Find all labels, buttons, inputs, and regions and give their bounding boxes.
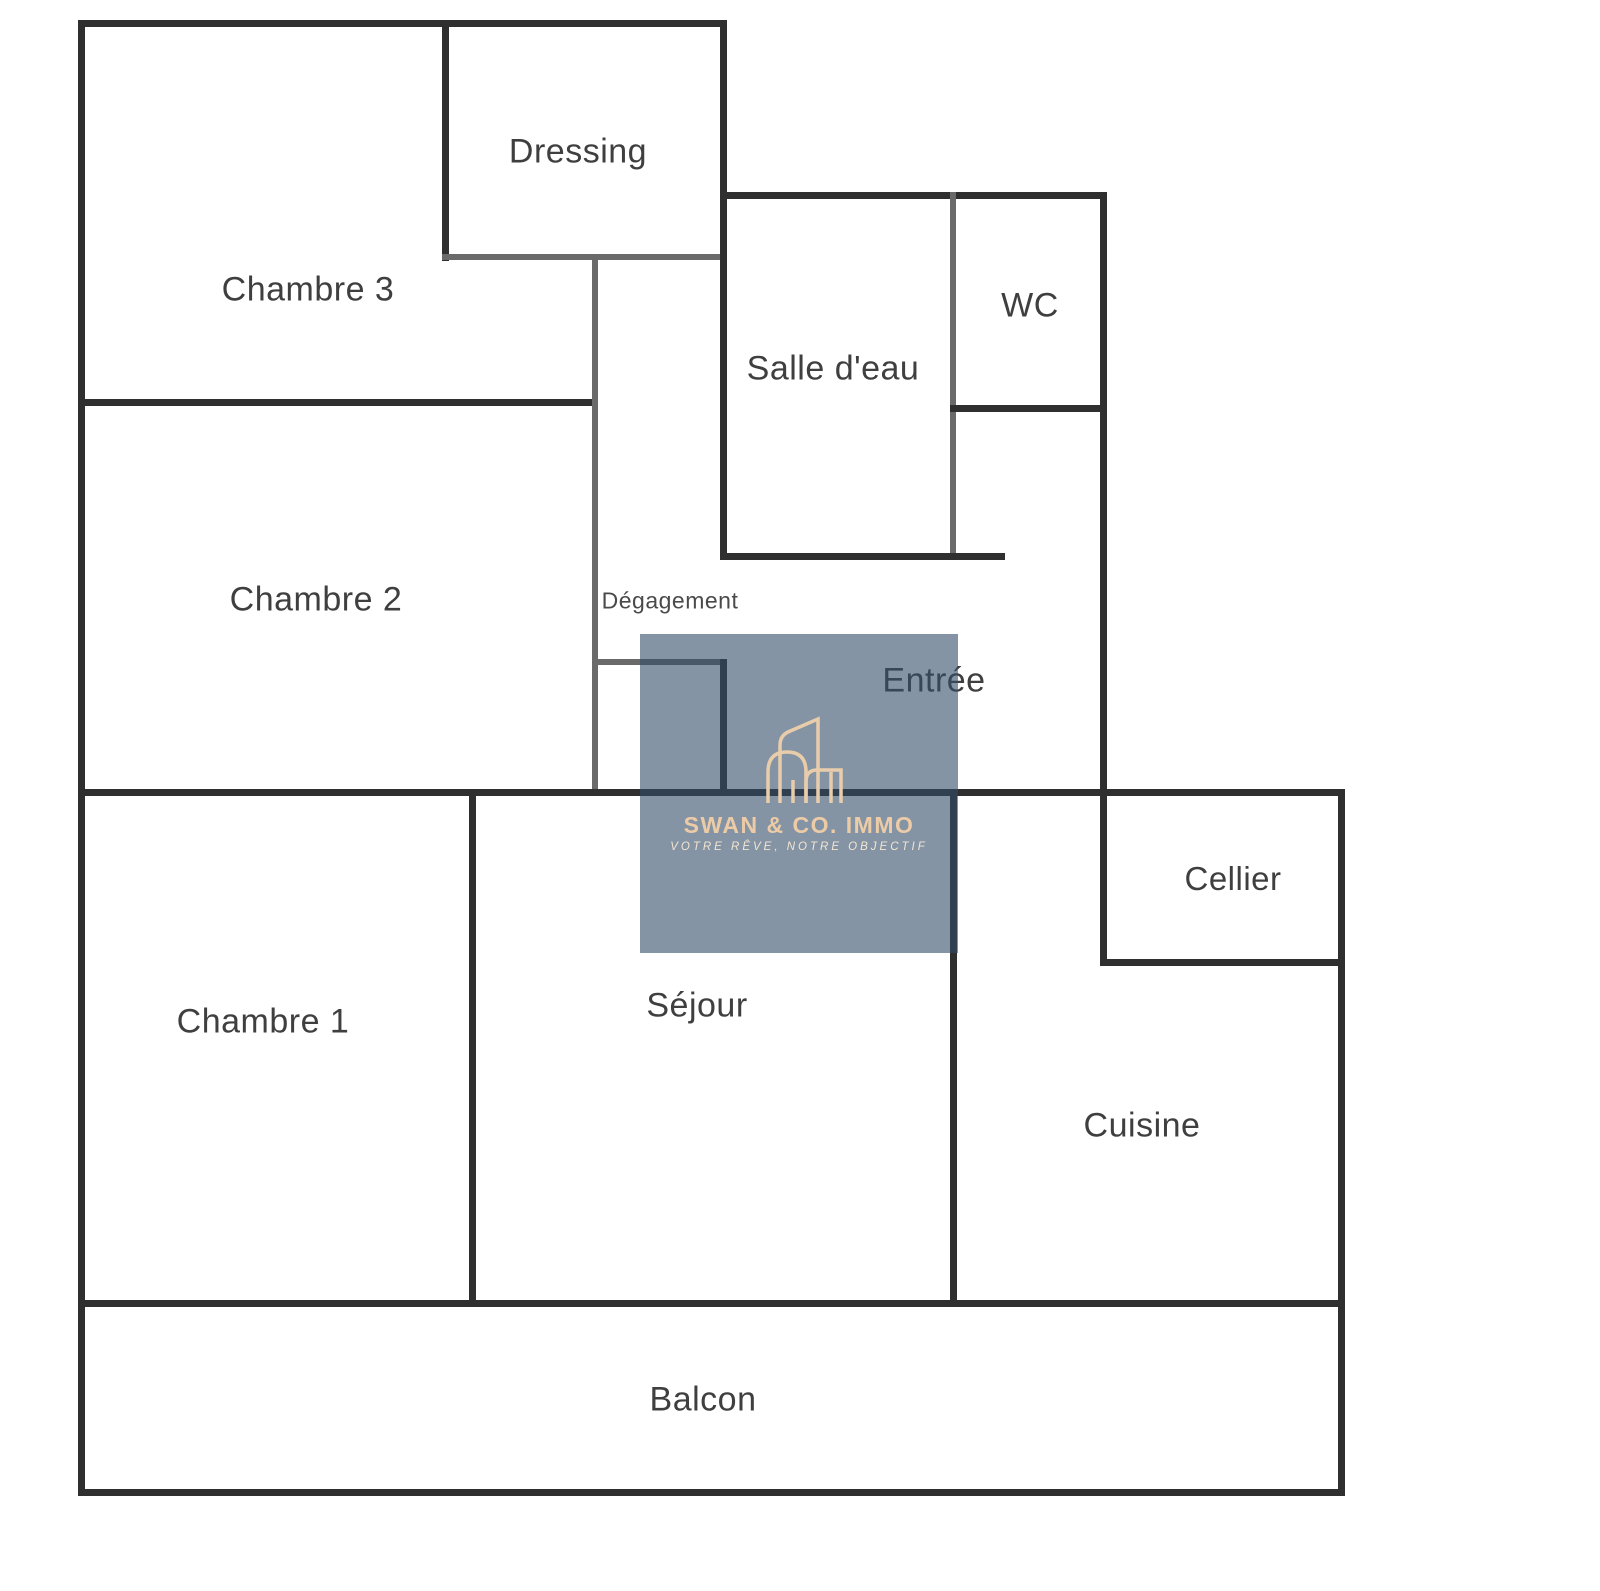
wall-chambre3-bottom: [78, 399, 598, 406]
wall-top-outer: [78, 20, 726, 27]
watermark-tagline: VOTRE RÊVE, NOTRE OBJECTIF: [640, 841, 958, 853]
room-label-chambre3: Chambre 3: [222, 271, 395, 310]
room-label-cellier: Cellier: [1184, 860, 1281, 898]
wall-balcon-bottom: [78, 1489, 1345, 1496]
room-label-cuisine: Cuisine: [1084, 1107, 1201, 1146]
room-label-chambre1: Chambre 1: [177, 1003, 350, 1042]
agency-watermark: SWAN & CO. IMMO VOTRE RÊVE, NOTRE OBJECT…: [640, 634, 958, 953]
wall-salledeau-wc-divider: [950, 192, 956, 560]
watermark-title: SWAN & CO. IMMO: [640, 812, 958, 839]
wall-cellier-left: [1100, 789, 1107, 966]
wall-salledeau-wc-top: [720, 192, 1107, 199]
wall-dressing-right: [720, 20, 727, 560]
floor-plan: Dressing Chambre 3 Salle d'eau WC Chambr…: [0, 0, 1600, 1591]
wall-left-outer: [78, 20, 85, 1496]
wall-wc-bottom: [950, 405, 1107, 412]
wall-dressing-bottom: [442, 254, 726, 260]
wall-degagement-left: [592, 254, 598, 796]
room-label-chambre2: Chambre 2: [230, 581, 403, 620]
building-outline-icon: [640, 634, 958, 953]
room-label-wc: WC: [1001, 287, 1059, 326]
room-label-sejour: Séjour: [646, 987, 747, 1026]
wall-salledeau-bottom: [720, 553, 1005, 560]
wall-chambre3-dressing-divider: [442, 20, 449, 261]
wall-chambre1-sejour-divider: [469, 789, 476, 1307]
room-label-salledeau: Salle d'eau: [747, 350, 920, 389]
wall-right-upper: [1100, 192, 1107, 796]
wall-balcon-top: [78, 1300, 1345, 1307]
wall-right-lower: [1338, 789, 1345, 1496]
wall-cellier-bottom: [1100, 959, 1345, 966]
room-label-degagement: Dégagement: [602, 588, 739, 615]
room-label-dressing: Dressing: [509, 133, 647, 172]
room-label-balcon: Balcon: [650, 1381, 757, 1420]
